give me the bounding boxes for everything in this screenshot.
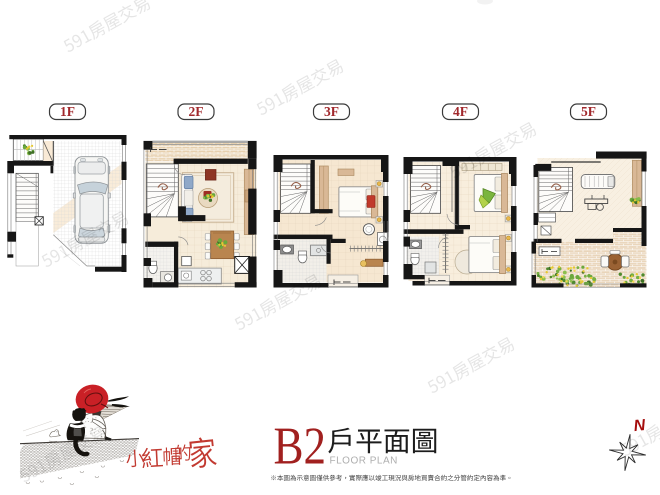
svg-text:FLOOR PLAN: FLOOR PLAN bbox=[330, 456, 398, 467]
svg-text:5F: 5F bbox=[581, 104, 596, 119]
svg-text:N: N bbox=[633, 417, 647, 435]
svg-text:1F: 1F bbox=[60, 104, 75, 119]
svg-text:2F: 2F bbox=[189, 104, 204, 119]
svg-text:4F: 4F bbox=[453, 104, 468, 119]
svg-text:B2: B2 bbox=[274, 416, 327, 475]
svg-text:3F: 3F bbox=[324, 104, 339, 119]
